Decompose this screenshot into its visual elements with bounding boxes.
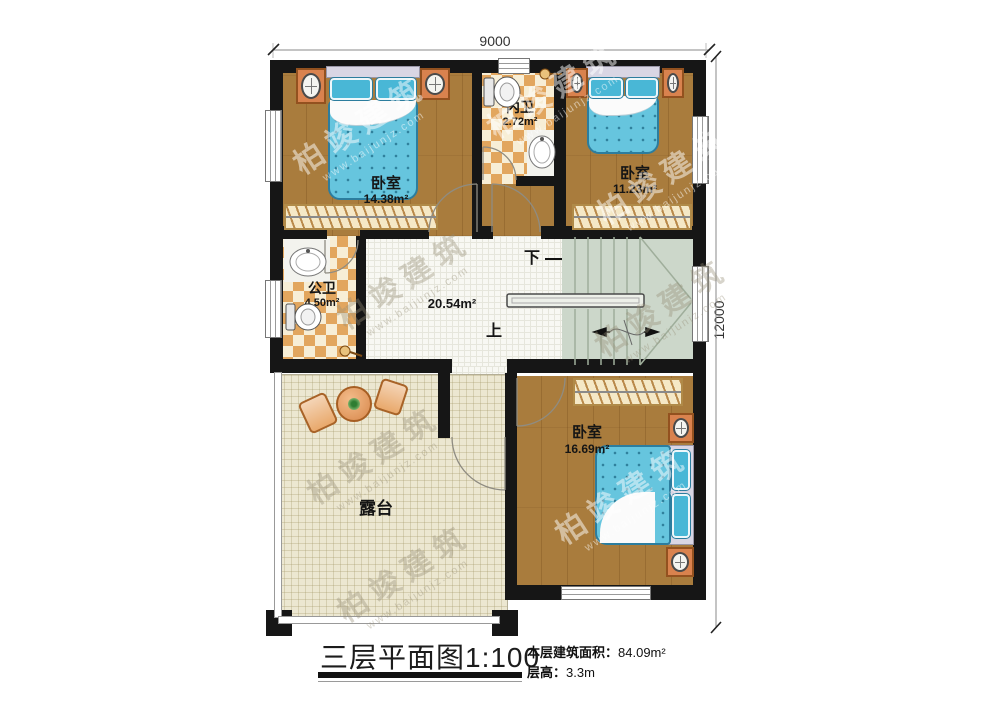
bedroom-bottom-wardrobe: [573, 378, 683, 406]
bed3-pillow-top: [672, 450, 690, 490]
bedroom-bottom-area: 16.69m²: [537, 443, 637, 456]
wall-publicbath-right: [356, 236, 366, 372]
bedroom-topleft-wardrobe: [284, 204, 438, 230]
bedroom-topleft-name: 卧室: [336, 176, 436, 193]
floor-area-info: 本层建筑面积：84.09m²: [527, 642, 666, 661]
terrace-table: [336, 386, 372, 422]
bed3-pillow-bottom: [672, 494, 690, 538]
dimension-width-label: 9000: [460, 33, 530, 49]
wall-innerbath-bottom: [516, 176, 554, 186]
bedroom-bottom-name: 卧室: [537, 425, 637, 442]
floor-area-value: 84.09m²: [618, 645, 666, 660]
terrace-parapet-bottom: [278, 616, 500, 624]
plan-title: 三层平面图1:100: [320, 636, 540, 676]
bed1-pillow-right: [376, 78, 416, 100]
bed3-nightstand-bottom: [666, 547, 694, 577]
terrace-name: 露台: [346, 500, 406, 519]
bed1-pillow-left: [330, 78, 372, 100]
wall-bottom-left-band: [270, 359, 452, 373]
bedroom-topright-wardrobe: [572, 204, 692, 230]
lamp-icon: [667, 73, 679, 93]
lamp-icon: [425, 73, 445, 95]
floor-height-value: 3.3m: [566, 665, 595, 680]
wall-bottom-right-band: [507, 359, 706, 373]
wall-bedroom1-bath: [472, 60, 482, 239]
plant-icon: [348, 398, 360, 410]
bed2-headboard: [586, 66, 660, 78]
bed2-pillow-right: [626, 78, 658, 98]
window-bedroom-bottom: [561, 586, 651, 600]
lamp-icon: [673, 418, 689, 438]
stairs-down-label: 下: [520, 250, 544, 268]
window-public-bath: [265, 280, 282, 338]
bed1-nightstand-left: [296, 68, 326, 104]
title-underline-thick: [318, 672, 522, 678]
bed2-pillow-left: [589, 78, 623, 98]
window-bedroom-topleft: [265, 110, 282, 182]
inner-bath-name: 内卫: [488, 100, 552, 115]
bedroom-topright-name: 卧室: [585, 166, 685, 183]
bed1-headboard: [326, 66, 420, 78]
bed2-nightstand-left: [566, 68, 588, 98]
wall-corridor-left: [438, 373, 450, 438]
floor-height-label: 层高：: [527, 665, 566, 680]
title-underline-thin: [318, 681, 522, 682]
window-bedroom-topright: [692, 116, 709, 184]
floor-area-label: 本层建筑面积：: [527, 645, 618, 660]
floor-plan-page: { "plan": { "dimensions": { "width_label…: [0, 0, 1000, 706]
wall-bath-bedroom2: [554, 60, 566, 239]
stairs-floor: [562, 236, 695, 366]
bed2-nightstand-right: [662, 68, 684, 98]
lamp-icon: [571, 73, 583, 93]
wall-bedroom-bottom-left: [505, 373, 517, 600]
public-bath-sink-nook: [284, 238, 330, 282]
bed1-nightstand-right: [420, 68, 450, 100]
floor-height-info: 层高：3.3m: [527, 662, 595, 681]
dimension-height-label: 12000: [711, 285, 727, 355]
lamp-icon: [671, 552, 689, 572]
stairs-up-label: 上: [482, 323, 506, 341]
terrace-parapet-left: [274, 372, 282, 618]
window-inner-bath: [498, 58, 530, 74]
bedroom-topleft-area: 14.38m²: [336, 193, 436, 206]
window-stairs: [692, 266, 709, 342]
public-bath-area: 4.50m²: [290, 297, 354, 309]
hall-area: 20.54m²: [402, 297, 502, 311]
bedroom-topright-area: 11.23m²: [585, 183, 685, 196]
inner-bath-area: 2.72m²: [488, 116, 552, 128]
public-bath-name: 公卫: [290, 281, 354, 296]
lamp-icon: [301, 73, 321, 99]
bed3-nightstand-top: [668, 413, 694, 443]
